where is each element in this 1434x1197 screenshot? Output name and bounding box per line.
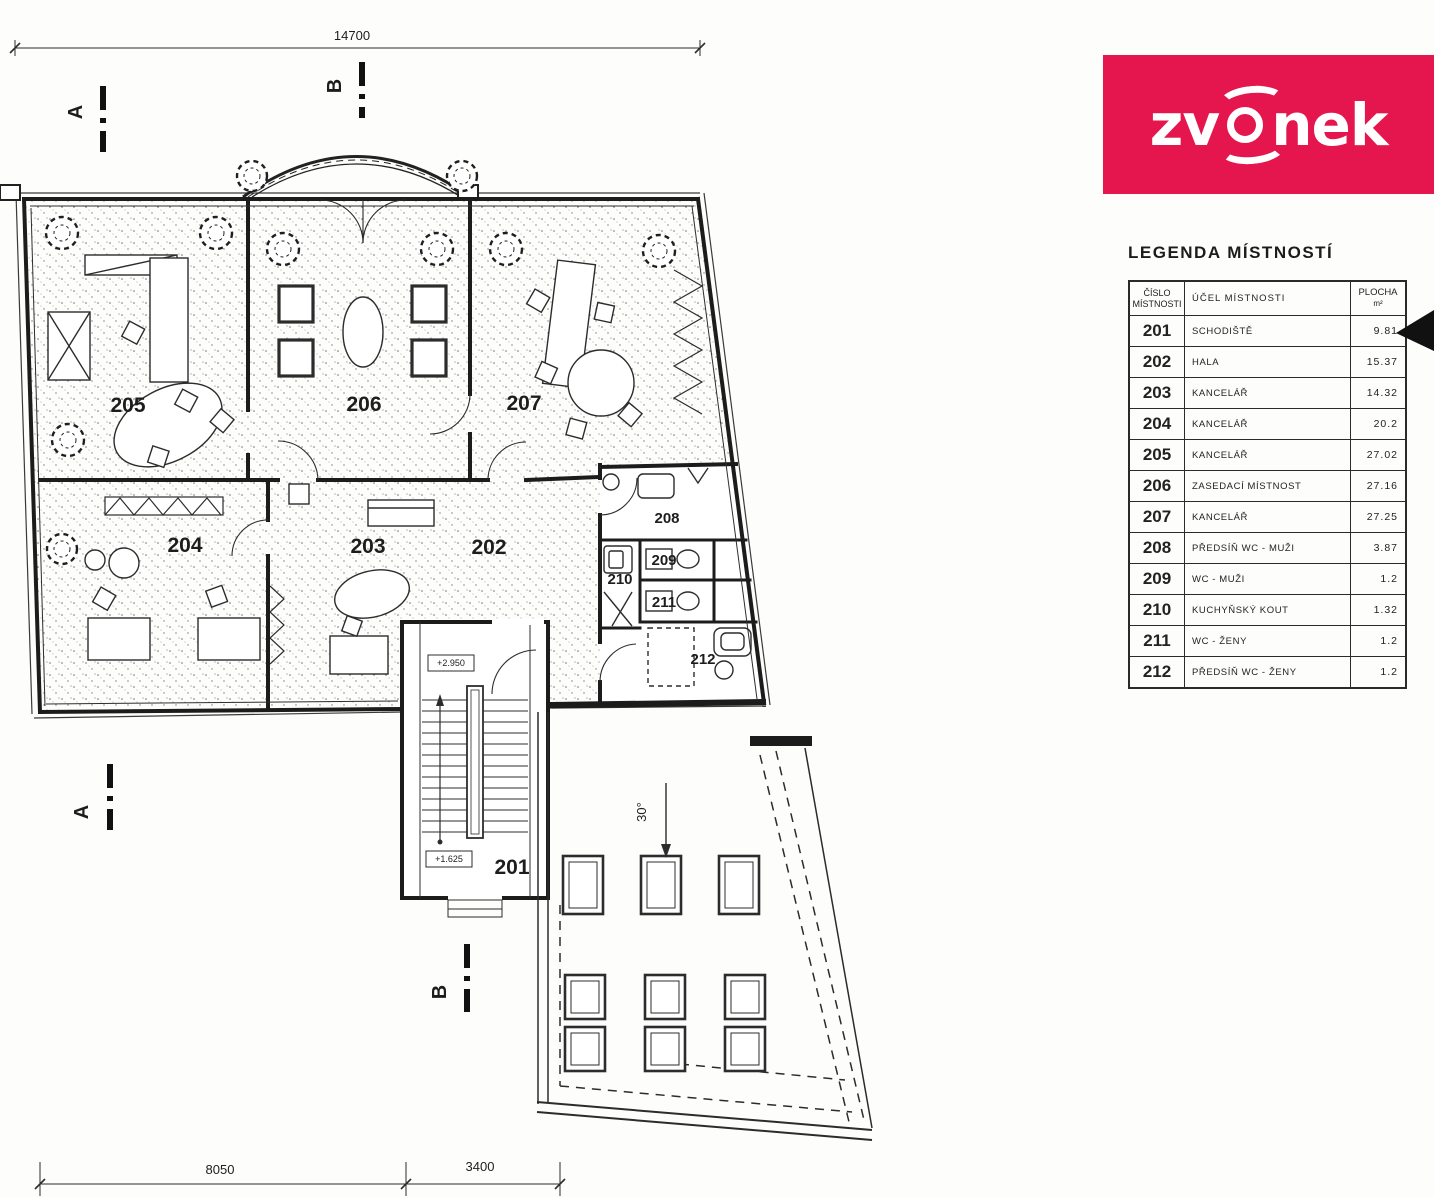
legend-col-purpose: ÚČEL MÍSTNOSTI (1185, 281, 1351, 316)
legend-col-number-line2: MÍSTNOSTI (1133, 299, 1182, 309)
legend-cell-number: 205 (1129, 440, 1185, 471)
logo-wordmark: zv nek (1150, 96, 1388, 154)
legend-row: 208PŘEDSÍŇ WC - MUŽI3.87 (1129, 533, 1406, 564)
legend-cell-purpose: KANCELÁŘ (1185, 440, 1351, 471)
legend-cell-number: 203 (1129, 378, 1185, 409)
legend-row: 205KANCELÁŘ27.02 (1129, 440, 1406, 471)
floor-plan: +2.950 +1.625 (0, 0, 1100, 1197)
legend-cell-area: 20.2 (1351, 409, 1407, 440)
logo: zv nek (1103, 55, 1434, 194)
legend-table-body: 201SCHODIŠTĚ9.81202HALA15.37203KANCELÁŘ1… (1129, 316, 1406, 689)
legend-row: 204KANCELÁŘ20.2 (1129, 409, 1406, 440)
legend-cell-number: 207 (1129, 502, 1185, 533)
legend-row: 212PŘEDSÍŇ WC - ŽENY1.2 (1129, 657, 1406, 689)
legend-cell-number: 210 (1129, 595, 1185, 626)
room-label-204: 204 (167, 534, 202, 557)
dimension-bottom-right: 3400 (466, 1159, 495, 1174)
legend-cell-area: 1.2 (1351, 564, 1407, 595)
legend-cell-number: 209 (1129, 564, 1185, 595)
terrace: 30° (537, 712, 872, 1140)
logo-text-left: zv (1150, 96, 1220, 154)
legend-cell-purpose: KANCELÁŘ (1185, 409, 1351, 440)
room-label-209: 209 (651, 552, 676, 569)
room-label-210: 210 (607, 571, 632, 588)
legend-cell-purpose: WC - ŽENY (1185, 626, 1351, 657)
legend-cell-number: 212 (1129, 657, 1185, 689)
legend-row: 206ZASEDACÍ MÍSTNOST27.16 (1129, 471, 1406, 502)
legend-table: ČÍSLO MÍSTNOSTI ÚČEL MÍSTNOSTI PLOCHA m²… (1128, 280, 1407, 689)
room-label-212: 212 (690, 651, 715, 668)
room-label-203: 203 (350, 535, 385, 558)
legend-cell-purpose: HALA (1185, 347, 1351, 378)
legend-cell-area: 1.2 (1351, 626, 1407, 657)
legend-row: 210KUCHYŇSKÝ KOUT1.32 (1129, 595, 1406, 626)
room-label-207: 207 (506, 392, 541, 415)
section-marker-a-top: A (65, 105, 87, 119)
legend-title: LEGENDA MÍSTNOSTÍ (1128, 243, 1398, 263)
legend-cell-area: 1.2 (1351, 657, 1407, 689)
legend-cell-purpose: SCHODIŠTĚ (1185, 316, 1351, 347)
legend-row: 202HALA15.37 (1129, 347, 1406, 378)
legend-cell-purpose: KUCHYŇSKÝ KOUT (1185, 595, 1351, 626)
legend-row: 211WC - ŽENY1.2 (1129, 626, 1406, 657)
legend-col-number-line1: ČÍSLO (1143, 288, 1170, 298)
room-label-211: 211 (652, 594, 676, 611)
legend-cell-purpose: KANCELÁŘ (1185, 502, 1351, 533)
legend-cell-number: 206 (1129, 471, 1185, 502)
section-marker-b-top: B (324, 79, 346, 93)
section-marker-a-bottom: A (71, 805, 93, 819)
elevation-upper: +2.950 (437, 658, 465, 668)
room-label-202: 202 (471, 536, 506, 559)
legend-header-row: ČÍSLO MÍSTNOSTI ÚČEL MÍSTNOSTI PLOCHA m² (1129, 281, 1406, 316)
legend-cell-area: 1.32 (1351, 595, 1407, 626)
legend-row: 209WC - MUŽI1.2 (1129, 564, 1406, 595)
room-label-201: 201 (494, 856, 529, 879)
slope-label: 30° (634, 802, 649, 822)
section-marker-b-bottom: B (429, 985, 451, 999)
bell-icon (1223, 103, 1267, 147)
legend-cell-area: 3.87 (1351, 533, 1407, 564)
legend-row: 201SCHODIŠTĚ9.81 (1129, 316, 1406, 347)
legend-col-area-unit: m² (1373, 299, 1382, 308)
elevation-lower: +1.625 (435, 854, 463, 864)
legend-cell-area: 27.25 (1351, 502, 1407, 533)
legend-col-number: ČÍSLO MÍSTNOSTI (1129, 281, 1185, 316)
legend-cell-number: 201 (1129, 316, 1185, 347)
legend-cell-purpose: PŘEDSÍŇ WC - ŽENY (1185, 657, 1351, 689)
legend-cell-number: 204 (1129, 409, 1185, 440)
page: +2.950 +1.625 (0, 0, 1434, 1197)
room-label-206: 206 (346, 393, 381, 416)
legend-cell-purpose: WC - MUŽI (1185, 564, 1351, 595)
legend-cell-area: 27.16 (1351, 471, 1407, 502)
dimension-top: 14700 (334, 28, 370, 43)
legend-cell-purpose: ZASEDACÍ MÍSTNOST (1185, 471, 1351, 502)
legend-cell-purpose: PŘEDSÍŇ WC - MUŽI (1185, 533, 1351, 564)
legend-cell-purpose: KANCELÁŘ (1185, 378, 1351, 409)
logo-text-right: nek (1271, 96, 1387, 154)
legend-cell-number: 211 (1129, 626, 1185, 657)
legend-cell-area: 14.32 (1351, 378, 1407, 409)
north-arrow-icon (1396, 306, 1434, 352)
legend-cell-number: 202 (1129, 347, 1185, 378)
legend-row: 207KANCELÁŘ27.25 (1129, 502, 1406, 533)
legend-cell-number: 208 (1129, 533, 1185, 564)
room-label-205: 205 (110, 394, 145, 417)
legend-row: 203KANCELÁŘ14.32 (1129, 378, 1406, 409)
room-label-208: 208 (654, 510, 679, 527)
dimension-bottom-left: 8050 (206, 1162, 235, 1177)
legend-cell-area: 27.02 (1351, 440, 1407, 471)
legend: LEGENDA MÍSTNOSTÍ ČÍSLO MÍSTNOSTI ÚČEL M… (1128, 243, 1398, 689)
